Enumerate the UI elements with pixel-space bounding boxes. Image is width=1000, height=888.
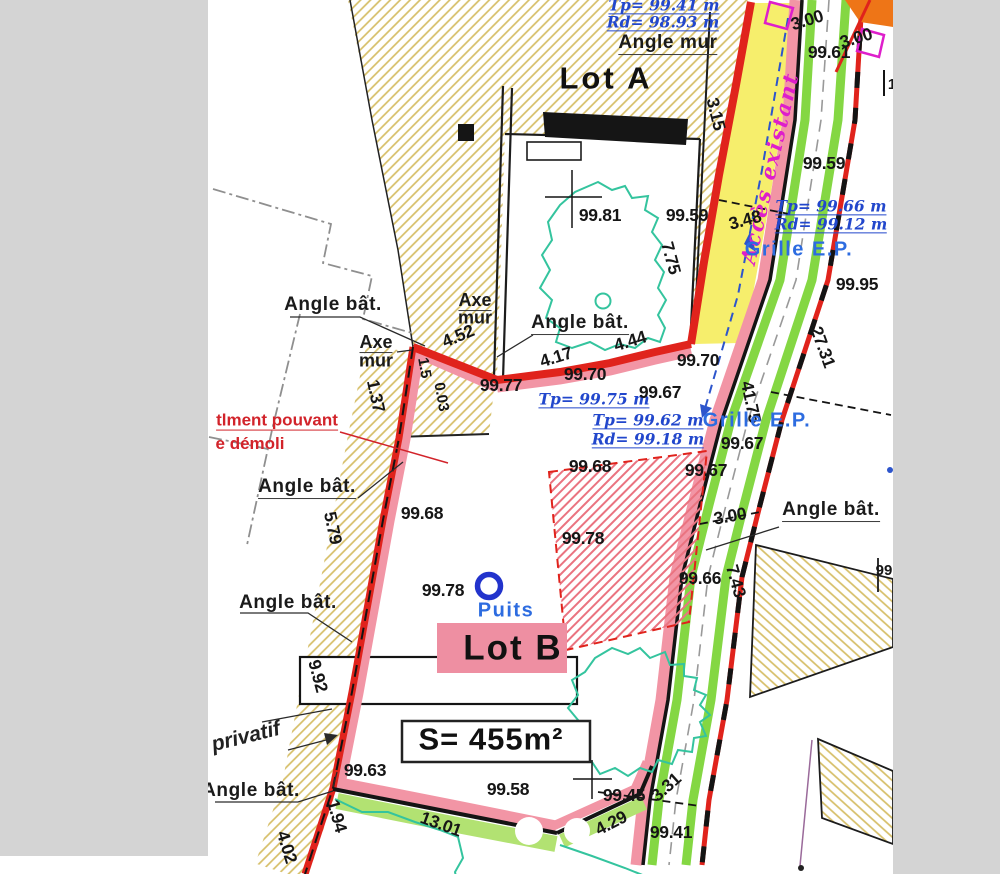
southeast-hatched-wedge (798, 739, 893, 871)
lot-b-title-box (437, 623, 567, 673)
east-hatched-wedge (750, 545, 893, 697)
site-plan-page: Tp= 99.41 mRd= 98.93 mAngle murLot A3.15… (0, 0, 1000, 888)
right-border-bar (893, 0, 1000, 874)
well-symbol (478, 575, 501, 598)
left-border-bar (0, 0, 208, 856)
bottom-white-band (0, 874, 1000, 888)
surface-box (402, 721, 590, 762)
demolition-hatched-area (549, 451, 707, 650)
